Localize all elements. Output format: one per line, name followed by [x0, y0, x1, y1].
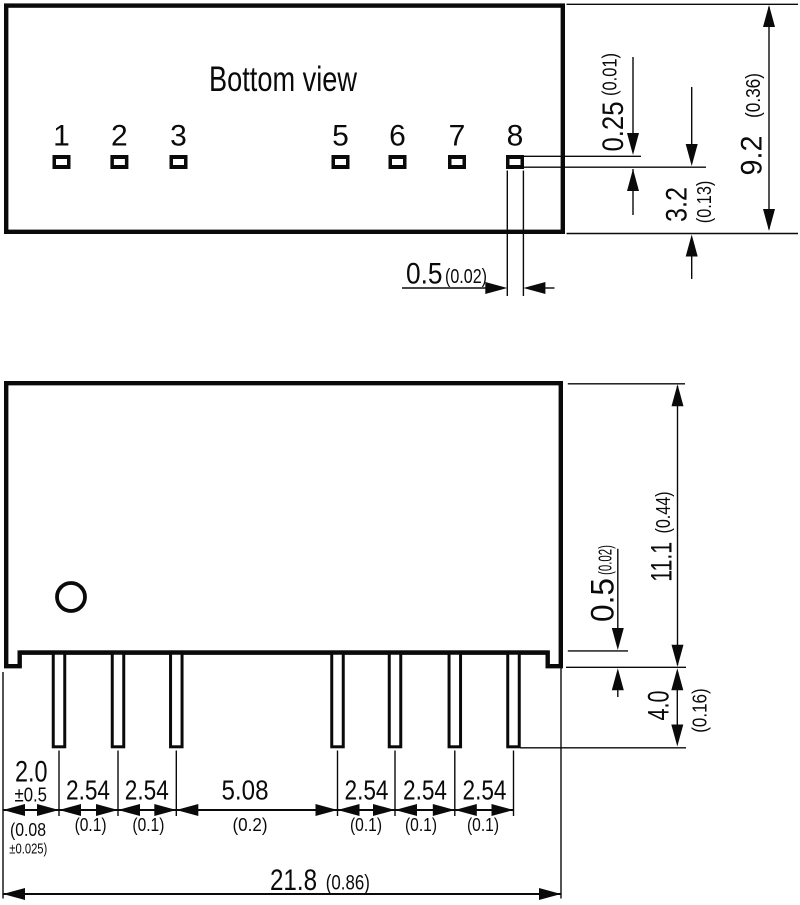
svg-text:11.1: 11.1 — [645, 542, 678, 582]
svg-text:5: 5 — [332, 120, 349, 153]
svg-text:3: 3 — [170, 120, 187, 153]
svg-text:(0.02): (0.02) — [596, 545, 616, 575]
svg-text:2.54: 2.54 — [463, 775, 507, 806]
svg-text:(0.1): (0.1) — [350, 815, 382, 835]
svg-text:(0.1): (0.1) — [405, 815, 437, 835]
svg-text:(0.02): (0.02) — [445, 266, 487, 288]
svg-text:(0.16): (0.16) — [690, 688, 712, 733]
svg-text:2.54: 2.54 — [345, 775, 389, 806]
svg-text:±0.025): ±0.025) — [9, 842, 47, 858]
svg-text:7: 7 — [449, 120, 466, 153]
svg-text:0.25: 0.25 — [597, 102, 630, 152]
svg-text:2: 2 — [111, 120, 128, 153]
svg-text:(0.1): (0.1) — [467, 815, 499, 835]
svg-text:4.0: 4.0 — [643, 691, 676, 721]
svg-text:(0.08: (0.08 — [10, 820, 46, 840]
svg-text:8: 8 — [507, 120, 524, 153]
svg-text:(0.1): (0.1) — [132, 815, 164, 835]
svg-text:0.5: 0.5 — [584, 578, 620, 622]
svg-text:21.8: 21.8 — [270, 864, 317, 897]
svg-text:6: 6 — [389, 120, 406, 153]
svg-text:5.08: 5.08 — [222, 775, 269, 806]
svg-text:(0.86): (0.86) — [326, 872, 370, 895]
svg-text:Bottom view: Bottom view — [209, 60, 358, 99]
svg-text:3.2: 3.2 — [661, 187, 694, 222]
svg-text:2.54: 2.54 — [125, 775, 169, 806]
svg-text:2.54: 2.54 — [403, 775, 447, 806]
svg-text:(0.1): (0.1) — [75, 815, 107, 835]
svg-text:±0.5: ±0.5 — [15, 785, 48, 807]
svg-text:(0.2): (0.2) — [233, 814, 268, 835]
svg-text:2.54: 2.54 — [66, 775, 110, 806]
svg-text:9.2: 9.2 — [736, 136, 769, 176]
svg-text:1: 1 — [53, 120, 70, 153]
svg-text:(0.36): (0.36) — [743, 73, 765, 118]
svg-text:(0.13): (0.13) — [694, 181, 716, 224]
svg-text:0.5: 0.5 — [406, 258, 443, 291]
svg-text:(0.01): (0.01) — [600, 53, 622, 96]
svg-text:(0.44): (0.44) — [653, 492, 675, 534]
